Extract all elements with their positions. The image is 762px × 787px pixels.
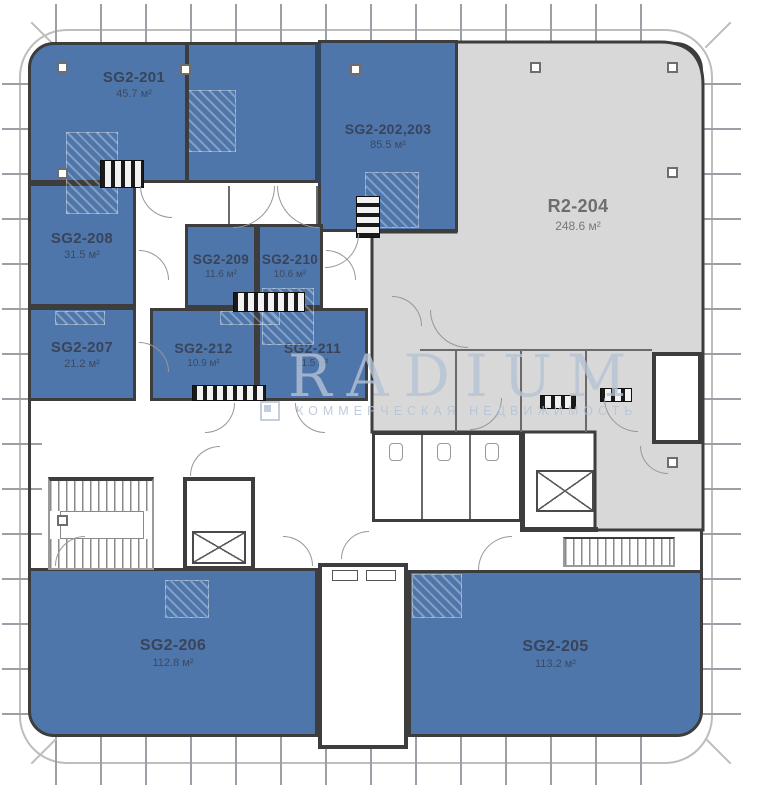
unit-area: 112.8 м² bbox=[140, 657, 206, 669]
counter-block bbox=[192, 385, 266, 401]
tech-block bbox=[356, 196, 380, 238]
wall-segment bbox=[520, 432, 525, 530]
service-room bbox=[652, 352, 702, 444]
unit-area: 10.9 м² bbox=[174, 358, 232, 369]
column bbox=[350, 64, 361, 75]
hatch-zone bbox=[220, 311, 280, 325]
unit-name: SG2-209 bbox=[193, 252, 249, 268]
column bbox=[667, 167, 678, 178]
column bbox=[180, 64, 191, 75]
unit-name: SG2-206 bbox=[140, 636, 206, 655]
toilet-fixture bbox=[389, 443, 403, 461]
elevator-right bbox=[536, 470, 594, 512]
vestibule-wall bbox=[228, 186, 230, 224]
shaft-bottom bbox=[318, 563, 408, 749]
unit-area: 31.5 м² bbox=[51, 249, 113, 261]
unit-name: SG2-210 bbox=[262, 252, 318, 268]
hatch-zone bbox=[188, 90, 236, 152]
hatch-zone bbox=[412, 574, 462, 618]
unit-area: 11.5 м² bbox=[284, 358, 341, 369]
partition bbox=[585, 350, 587, 432]
unit-area: 21.2 м² bbox=[51, 358, 113, 370]
floor-plan: R2-204 248.6 м² SG2-201 45.7 м² SG2-202,… bbox=[0, 0, 762, 787]
window-band bbox=[315, 44, 321, 183]
unit-name: SG2-205 bbox=[522, 637, 588, 656]
kitchen-block bbox=[233, 292, 305, 312]
unit-name: SG2-208 bbox=[51, 230, 113, 248]
column bbox=[530, 62, 541, 73]
column bbox=[57, 515, 68, 526]
partition bbox=[455, 350, 457, 432]
staircase-right bbox=[563, 537, 675, 567]
partition bbox=[420, 349, 652, 351]
elevator-lobby-left bbox=[183, 477, 255, 570]
elevator-left bbox=[192, 531, 246, 564]
hatch-zone bbox=[55, 311, 105, 325]
kitchen-block bbox=[100, 160, 144, 188]
column bbox=[57, 168, 68, 179]
bathroom-block bbox=[372, 432, 522, 522]
unit-area: 10.6 м² bbox=[262, 269, 318, 280]
unit-name: SG2-201 bbox=[49, 69, 219, 87]
unit-area: 11.6 м² bbox=[193, 269, 249, 280]
column bbox=[57, 62, 68, 73]
wall-segment bbox=[520, 527, 598, 532]
tech-block bbox=[540, 395, 576, 409]
unit-name: SG2-202,203 bbox=[345, 121, 432, 138]
unit-name: SG2-207 bbox=[51, 339, 113, 357]
column bbox=[667, 457, 678, 468]
column bbox=[667, 62, 678, 73]
unit-name: SG2-212 bbox=[174, 340, 232, 357]
toilet-fixture bbox=[437, 443, 451, 461]
hatch-zone bbox=[165, 580, 209, 618]
toilet-fixture bbox=[485, 443, 499, 461]
unit-area: 113.2 м² bbox=[522, 658, 588, 670]
unit-area: 85.5 м² bbox=[345, 139, 432, 151]
partition bbox=[520, 350, 522, 432]
